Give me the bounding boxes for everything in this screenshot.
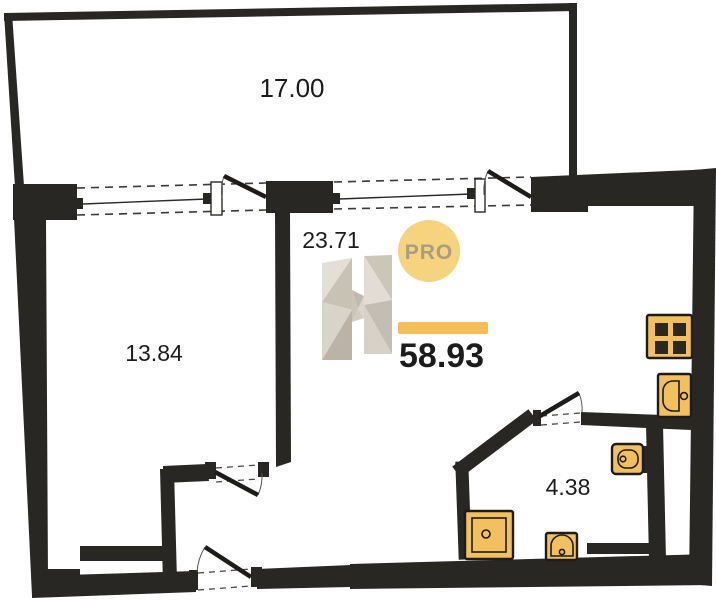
stove-icon (647, 315, 692, 358)
accent-bar (398, 322, 488, 334)
wall-pier (13, 184, 77, 220)
left-room-door (205, 462, 269, 495)
floor-plan: PRO 58.93 17.00 23.71 13.84 4.38 (0, 0, 716, 600)
floor-plan-svg: PRO 58.93 17.00 23.71 13.84 4.38 (0, 0, 716, 600)
window-2 (331, 177, 531, 209)
balcony-door-1 (211, 176, 266, 215)
window-wall (13, 171, 531, 220)
exterior-walls (14, 168, 716, 598)
pro-badge: PRO (398, 220, 460, 282)
total-area-label: 58.93 (399, 337, 484, 375)
wardrobe (80, 546, 174, 561)
window-1 (74, 183, 266, 215)
entrance-door (189, 547, 262, 590)
washbasin-icon (546, 533, 577, 566)
kitchen-sink-icon (658, 374, 691, 417)
room-label-left-room: 13.84 (125, 340, 183, 366)
bathroom-door (533, 393, 582, 426)
pro-badge-label: PRO (405, 241, 454, 264)
wall-pier (266, 181, 333, 213)
toilet-icon (612, 444, 650, 474)
shower-icon (465, 511, 513, 559)
kitchen-fixtures (647, 315, 692, 417)
room-label-balcony: 17.00 (259, 73, 324, 103)
h-logo (322, 255, 392, 360)
room-labels: 17.00 23.71 13.84 4.38 (125, 73, 590, 500)
room-label-living-room: 23.71 (302, 227, 360, 253)
room-label-bathroom: 4.38 (546, 474, 591, 500)
